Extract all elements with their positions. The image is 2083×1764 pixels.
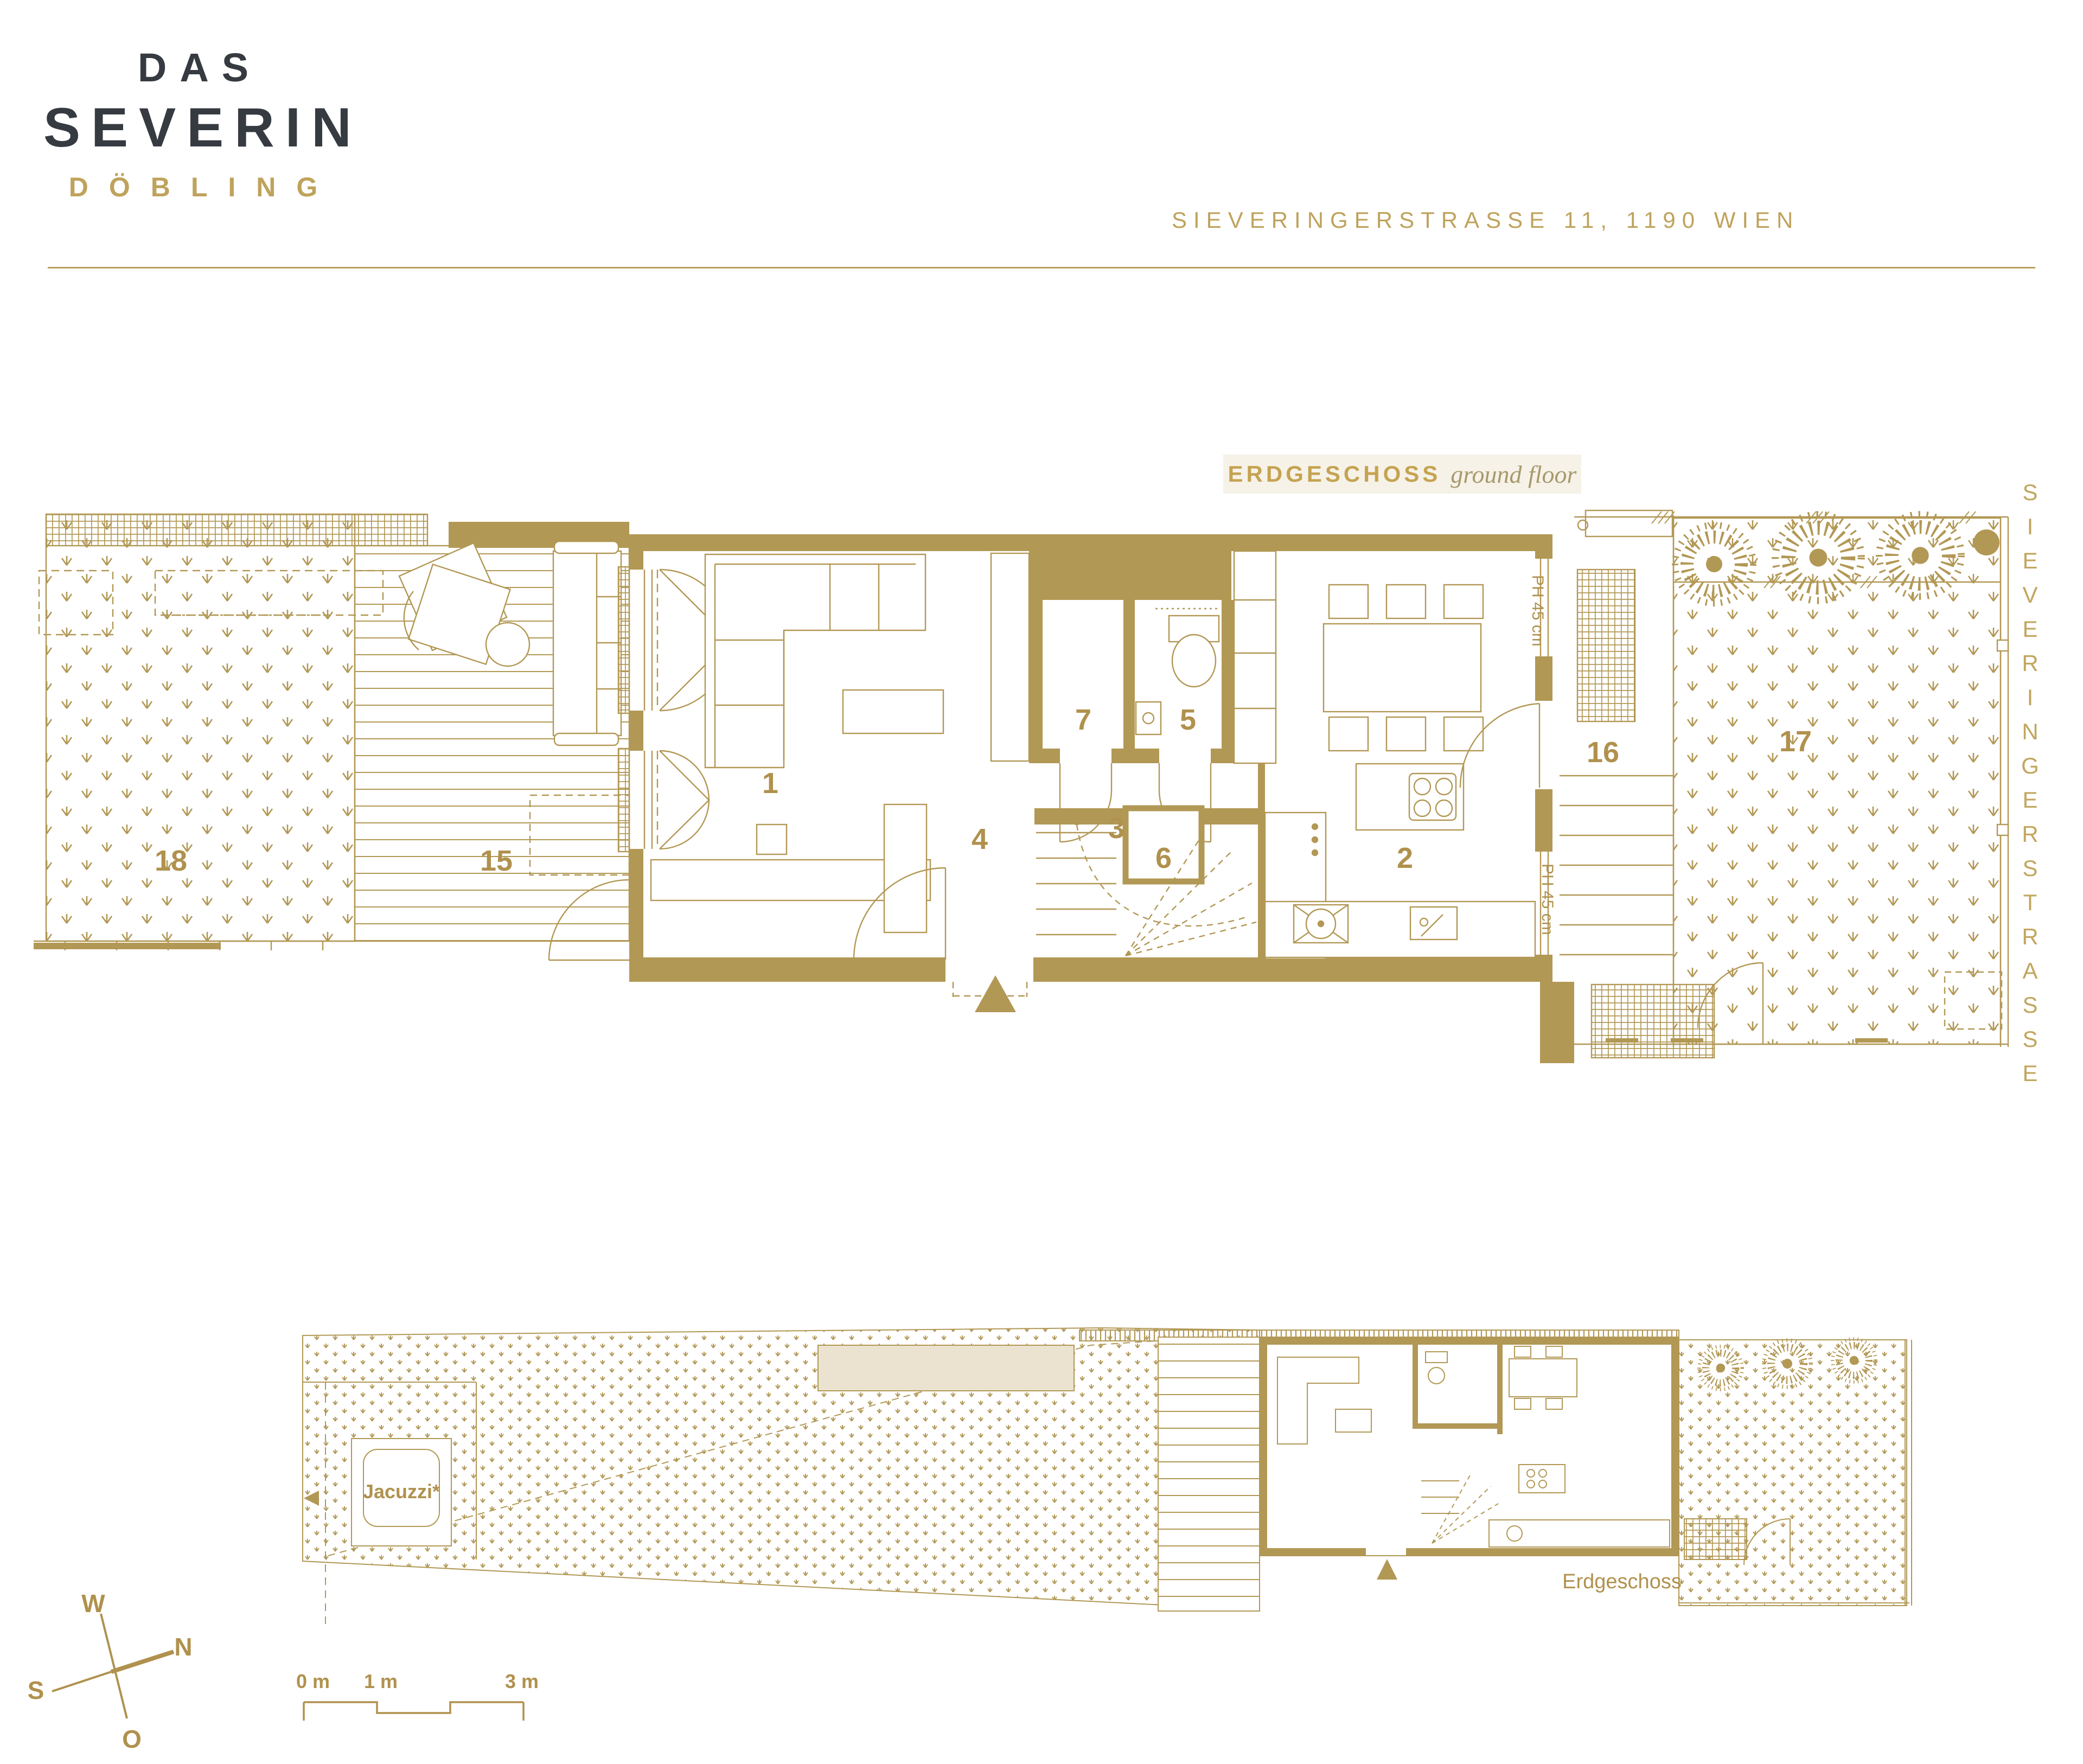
- room-label-storage: 7: [1075, 704, 1091, 736]
- scale-three: 3 m: [505, 1670, 539, 1692]
- parapet-note-upper: PH 45 cm: [1529, 575, 1547, 647]
- scale-one: 1 m: [364, 1670, 398, 1692]
- room-label-steps: 16: [1587, 736, 1619, 769]
- compass-rose: W N S O: [28, 1589, 193, 1753]
- room-label-entry: 4: [972, 823, 988, 855]
- site-floor-label: Erdgeschoss: [1562, 1570, 1682, 1593]
- brochure-page: DAS SEVERIN DÖBLING SIEVERINGERSTRASSE 1…: [0, 0, 2083, 1764]
- site-deck: [1158, 1337, 1260, 1611]
- main-floor-plan: [34, 510, 2008, 1063]
- site-house: [1260, 1337, 1679, 1580]
- room-label-front-garden: 17: [1779, 725, 1812, 758]
- room-label-terrace: 15: [480, 845, 513, 877]
- scale-zero: 0 m: [296, 1670, 330, 1692]
- compass-east: O: [122, 1725, 142, 1753]
- compass-south: S: [28, 1676, 44, 1704]
- room-label-kitchen: 2: [1397, 842, 1413, 874]
- compass-west: W: [81, 1589, 105, 1618]
- room-label-wc: 5: [1180, 704, 1196, 736]
- room-label-garden: 18: [155, 845, 187, 877]
- living-room-furniture: [651, 553, 1029, 932]
- floor-plan-canvas: 1 2 3 4 5 6 7 15 16 17 18 PH 45 cm PH 45…: [0, 0, 2083, 1764]
- parapet-note-lower: PH 45 cm: [1538, 864, 1556, 935]
- compass-north: N: [174, 1633, 192, 1661]
- scale-bar: 0 m 1 m 3 m: [296, 1670, 539, 1721]
- terrace-area-15: [355, 522, 629, 960]
- front-garden-17: [1574, 512, 2008, 1047]
- site-front-garden: [1679, 1339, 1912, 1606]
- room-label-stairs: 6: [1155, 842, 1172, 874]
- room-label-living: 1: [762, 767, 778, 800]
- room-label-hallway: 3: [1108, 812, 1124, 845]
- jacuzzi-label: Jacuzzi*: [363, 1480, 440, 1503]
